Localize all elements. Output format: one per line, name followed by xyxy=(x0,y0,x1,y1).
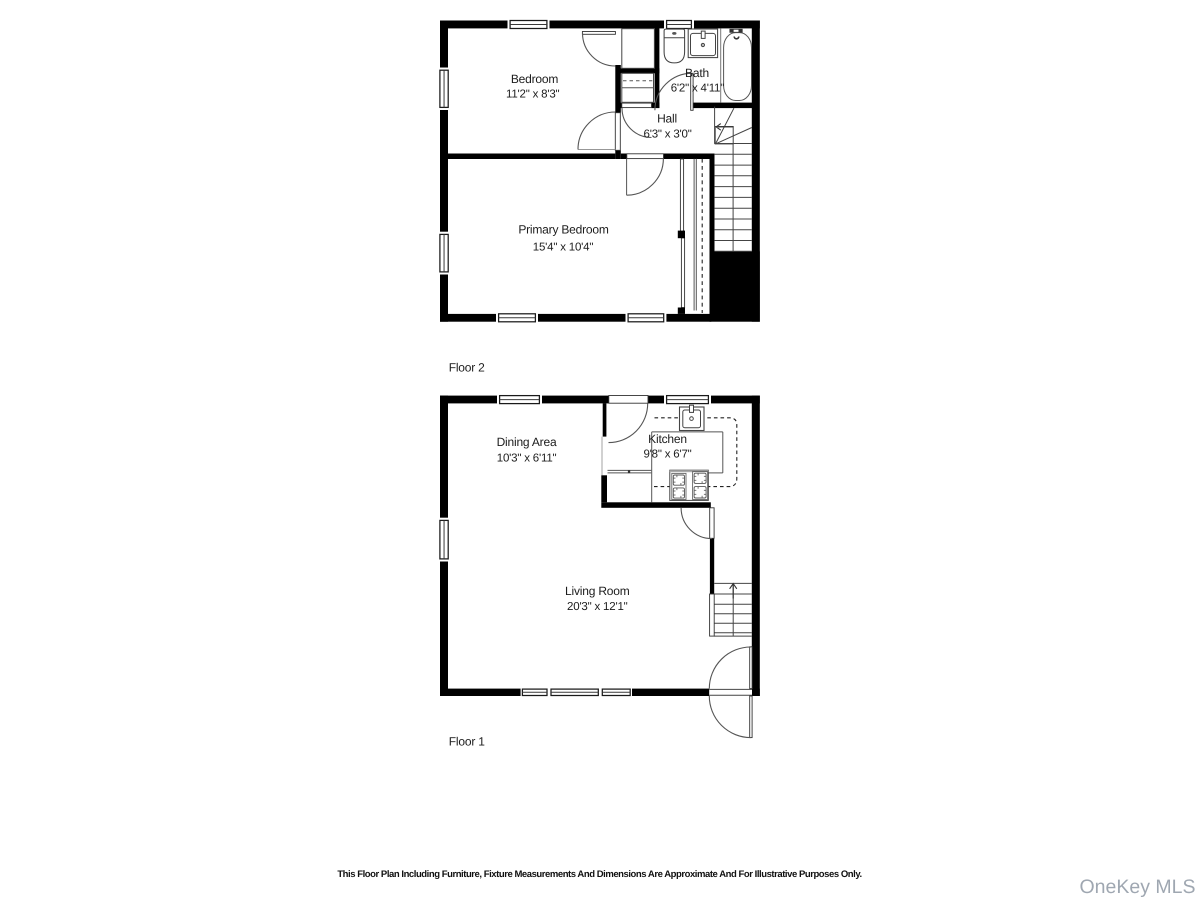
svg-text:OneKey MLS: OneKey MLS xyxy=(1080,876,1196,898)
svg-text:10'3" x 6'11": 10'3" x 6'11" xyxy=(497,453,557,465)
svg-text:Dining Area: Dining Area xyxy=(497,435,557,449)
svg-text:Floor 2: Floor 2 xyxy=(449,361,485,375)
svg-text:Living Room: Living Room xyxy=(565,584,630,598)
svg-text:9'8" x 6'7": 9'8" x 6'7" xyxy=(643,449,691,461)
svg-text:Floor 1: Floor 1 xyxy=(449,735,485,749)
svg-text:This Floor Plan Including Furn: This Floor Plan Including Furniture, Fix… xyxy=(337,869,861,880)
svg-text:11'2" x 8'3": 11'2" x 8'3" xyxy=(506,89,560,101)
svg-text:15'4" x 10'4": 15'4" x 10'4" xyxy=(533,242,594,254)
svg-text:Bedroom: Bedroom xyxy=(511,72,558,86)
svg-text:6'3" x 3'0": 6'3" x 3'0" xyxy=(644,129,692,141)
svg-text:6'2" x 4'11": 6'2" x 4'11" xyxy=(671,83,725,95)
svg-text:Bath: Bath xyxy=(685,66,709,80)
svg-text:Primary Bedroom: Primary Bedroom xyxy=(518,223,609,237)
svg-text:Kitchen: Kitchen xyxy=(648,432,687,446)
svg-text:20'3" x 12'1": 20'3" x 12'1" xyxy=(567,601,628,613)
svg-text:Hall: Hall xyxy=(657,112,677,126)
